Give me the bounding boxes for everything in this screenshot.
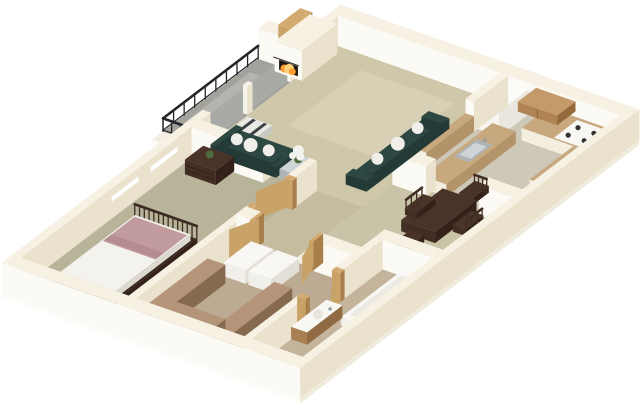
glass-door-frame-east — [248, 83, 253, 115]
sofa-right-pillow-1 — [412, 122, 424, 134]
stove-burner-1 — [575, 125, 580, 130]
kitchen-faucet — [483, 139, 487, 143]
sofa-left-arm-east-south — [271, 166, 276, 178]
flowers-2 — [296, 153, 304, 161]
bedroom-door-jamb-north-east — [292, 178, 296, 211]
floor-plan-stage — [0, 0, 640, 416]
bath-door-jamb-north-east — [340, 270, 344, 303]
glass-door-frame-south — [243, 85, 248, 115]
dresser-plant — [206, 151, 214, 159]
floorplan-3d-render — [0, 0, 640, 416]
vanity-sink-bowl — [313, 309, 323, 319]
stove-burner-2 — [566, 133, 571, 138]
flowers-3 — [289, 152, 296, 159]
sofa-left-pillow-1 — [231, 133, 243, 145]
fire-flame-3 — [289, 68, 296, 75]
sofa-right-pillow-2 — [391, 137, 405, 151]
sofa-right-pillow-3 — [371, 153, 383, 165]
vanity-faucet — [328, 307, 332, 311]
upper-cabinet-seam — [537, 109, 538, 118]
sofa-left-pillow-3 — [263, 144, 275, 156]
sofa-left-pillow-2 — [244, 138, 258, 152]
